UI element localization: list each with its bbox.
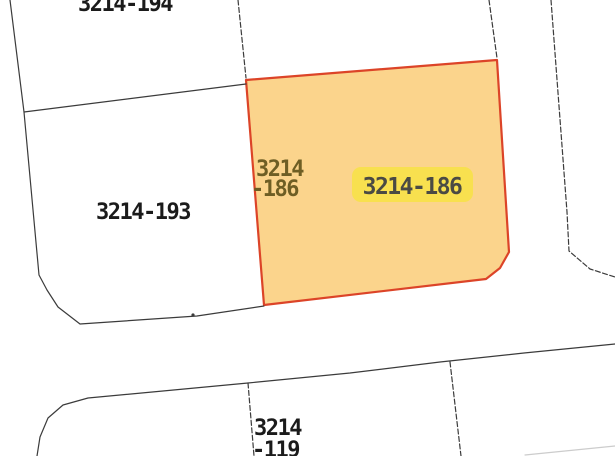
- parcel-label-3214-193: 3214-193: [96, 200, 190, 225]
- parcel-label-3214-186-tag: 3214-186: [363, 174, 462, 200]
- parcel-label-3214-186-inline-line2: -186: [251, 177, 299, 202]
- map-canvas[interactable]: 3214-194 3214-193 3214 -186 3214-186 321…: [0, 0, 615, 456]
- boundary-line-left-and-parcel193-bottom: [10, 0, 264, 324]
- parcel-label-3214-194: 3214-194: [78, 0, 173, 17]
- boundary-line-119-right: [450, 362, 461, 456]
- boundary-line-194-right: [238, 0, 246, 78]
- boundary-point-marker: [191, 313, 194, 316]
- boundary-line-faint-bottom-right: [525, 446, 615, 455]
- cadastral-map-svg: 3214-194 3214-193 3214 -186 3214-186 321…: [0, 0, 615, 456]
- selected-parcel-tag: 3214-186: [352, 167, 473, 202]
- boundary-line-road-lower-edge: [37, 344, 615, 456]
- boundary-line-right-parcel: [551, 0, 615, 277]
- parcel-label-3214-119-line2: -119: [252, 438, 299, 456]
- boundary-line-above-selected: [489, 0, 497, 58]
- boundary-line-194-193-divider: [24, 84, 246, 112]
